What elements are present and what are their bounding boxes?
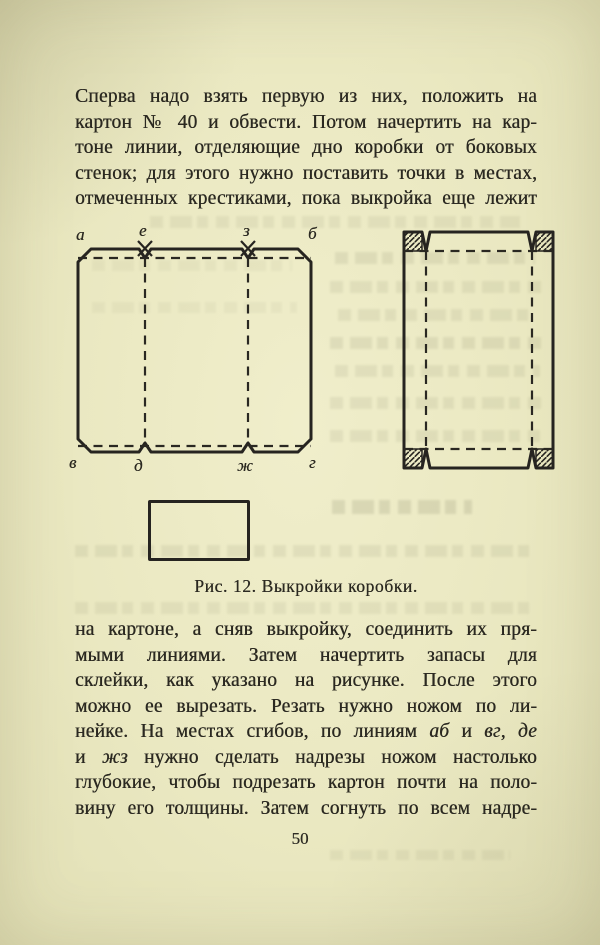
text-line: мыми линиями. Затем начертить запасы для — [75, 643, 537, 669]
glue-tab-hatched — [404, 449, 422, 468]
text-line: на картоне, а сняв выкройку, соединить и… — [75, 617, 537, 643]
pattern-label-g: г — [309, 456, 316, 470]
box-bottom-rectangle-drawing — [148, 500, 250, 561]
text-line: вину его толщины. Затем согнуть по всем … — [75, 796, 537, 822]
figure-caption: Рис. 12. Выкройки коробки. — [75, 576, 537, 597]
text-line: и жз нужно сделать надрезы ножом настоль… — [75, 745, 537, 771]
pattern-label-a: а — [76, 228, 85, 242]
glue-tab-hatched — [404, 232, 422, 251]
pattern-label-d: д — [134, 459, 143, 473]
pattern-label-b: б — [308, 227, 317, 241]
text-line: глубокие, чтобы подрезать картон почти н… — [75, 770, 537, 796]
pattern-label-v: в — [69, 456, 76, 470]
pattern-label-e: е — [139, 224, 147, 238]
pattern-label-z: з — [243, 224, 250, 238]
glue-tab-hatched — [536, 449, 553, 468]
text-line: склейки, как указано на рисунке. После э… — [75, 668, 537, 694]
text-line: можно ее вырезать. Резать нужно ножом по… — [75, 694, 537, 720]
paragraph-bottom: на картоне, а сняв выкройку, соединить и… — [75, 617, 537, 821]
book-page: Сперва надо взять первую из них, положит… — [0, 0, 600, 945]
pattern-label-zh: ж — [237, 459, 253, 473]
box-pattern-left-drawing — [70, 240, 320, 462]
box-pattern-right-drawing — [398, 226, 560, 474]
glue-tab-hatched — [536, 232, 553, 251]
text-line: нейке. На местах сгибов, по линиям аб и … — [75, 719, 537, 745]
page-number: 50 — [0, 829, 600, 849]
